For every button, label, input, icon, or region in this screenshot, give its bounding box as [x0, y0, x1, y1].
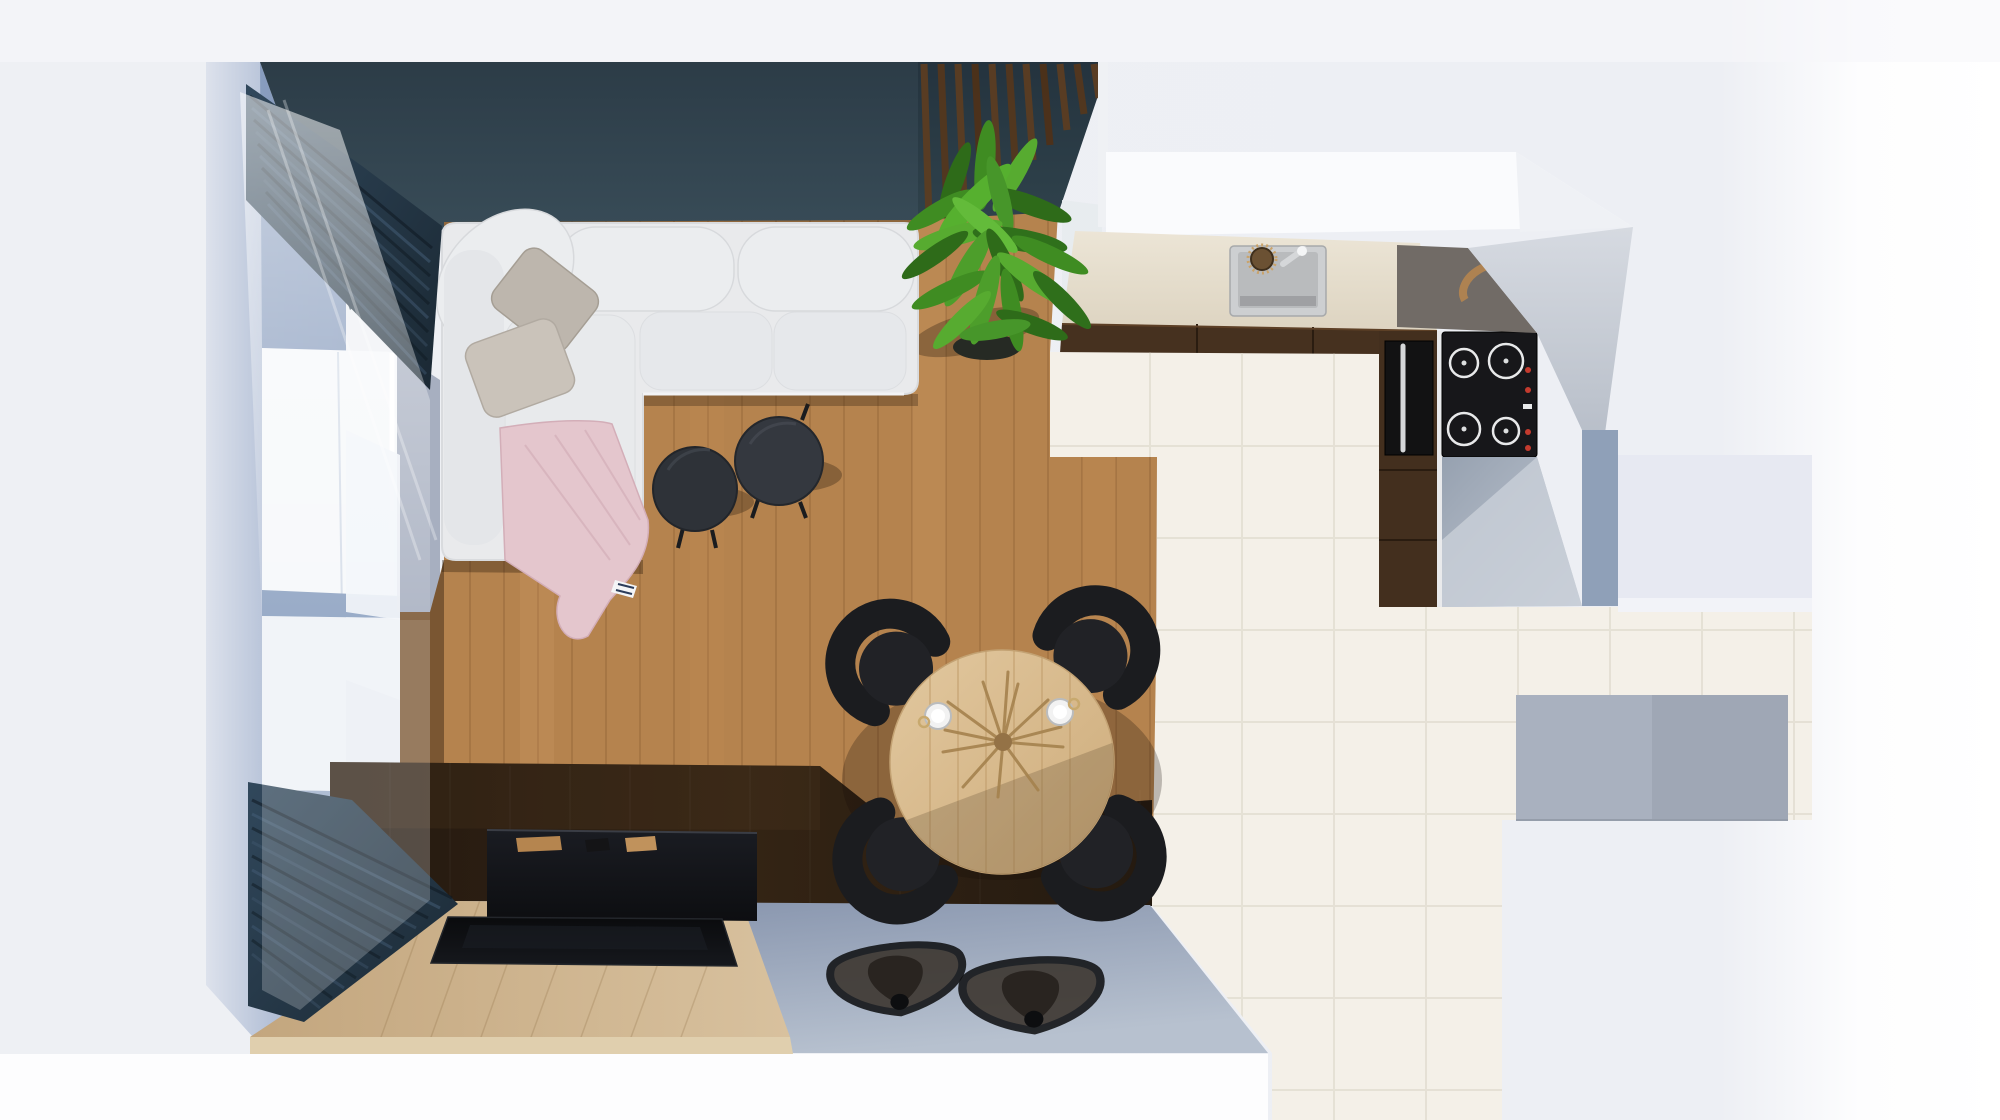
faucet-glare [1297, 246, 1307, 256]
seat-cushion [774, 312, 906, 390]
tv-bench [487, 830, 757, 921]
induction-cooktop [1442, 332, 1537, 457]
adjacent-room-floor [1618, 455, 1812, 598]
background-top-strip [0, 0, 2000, 62]
gray-rug-shade [1652, 695, 1788, 820]
bench-decor-wood2 [625, 836, 657, 852]
render-canvas [0, 0, 2000, 1120]
cooktop-switch [1523, 404, 1532, 409]
bench-decor-dark [585, 838, 610, 852]
floor-plan-render [0, 0, 2000, 1120]
coffee-table-small [653, 447, 737, 531]
adjacent-room-step [1618, 598, 1812, 612]
built-in-oven [1385, 341, 1433, 455]
kitchen-sink [1230, 245, 1326, 316]
seat-cushion [640, 312, 772, 390]
tv-screen [431, 917, 737, 966]
back-cushion [738, 227, 914, 311]
sink-drain-dial [1251, 248, 1273, 270]
sink-lip [1240, 296, 1316, 306]
platform-front-edge [250, 1037, 793, 1054]
sofa-front-shadow [643, 394, 918, 406]
bench-decor-wood [516, 836, 562, 852]
tv-reflection [462, 925, 708, 950]
kitchen-right-wall [1582, 430, 1618, 606]
counter-edge-sliver [1437, 331, 1442, 607]
coffee-table-large [735, 417, 823, 505]
oven-door [1385, 341, 1433, 455]
background-bottom-strip [0, 1054, 1268, 1120]
